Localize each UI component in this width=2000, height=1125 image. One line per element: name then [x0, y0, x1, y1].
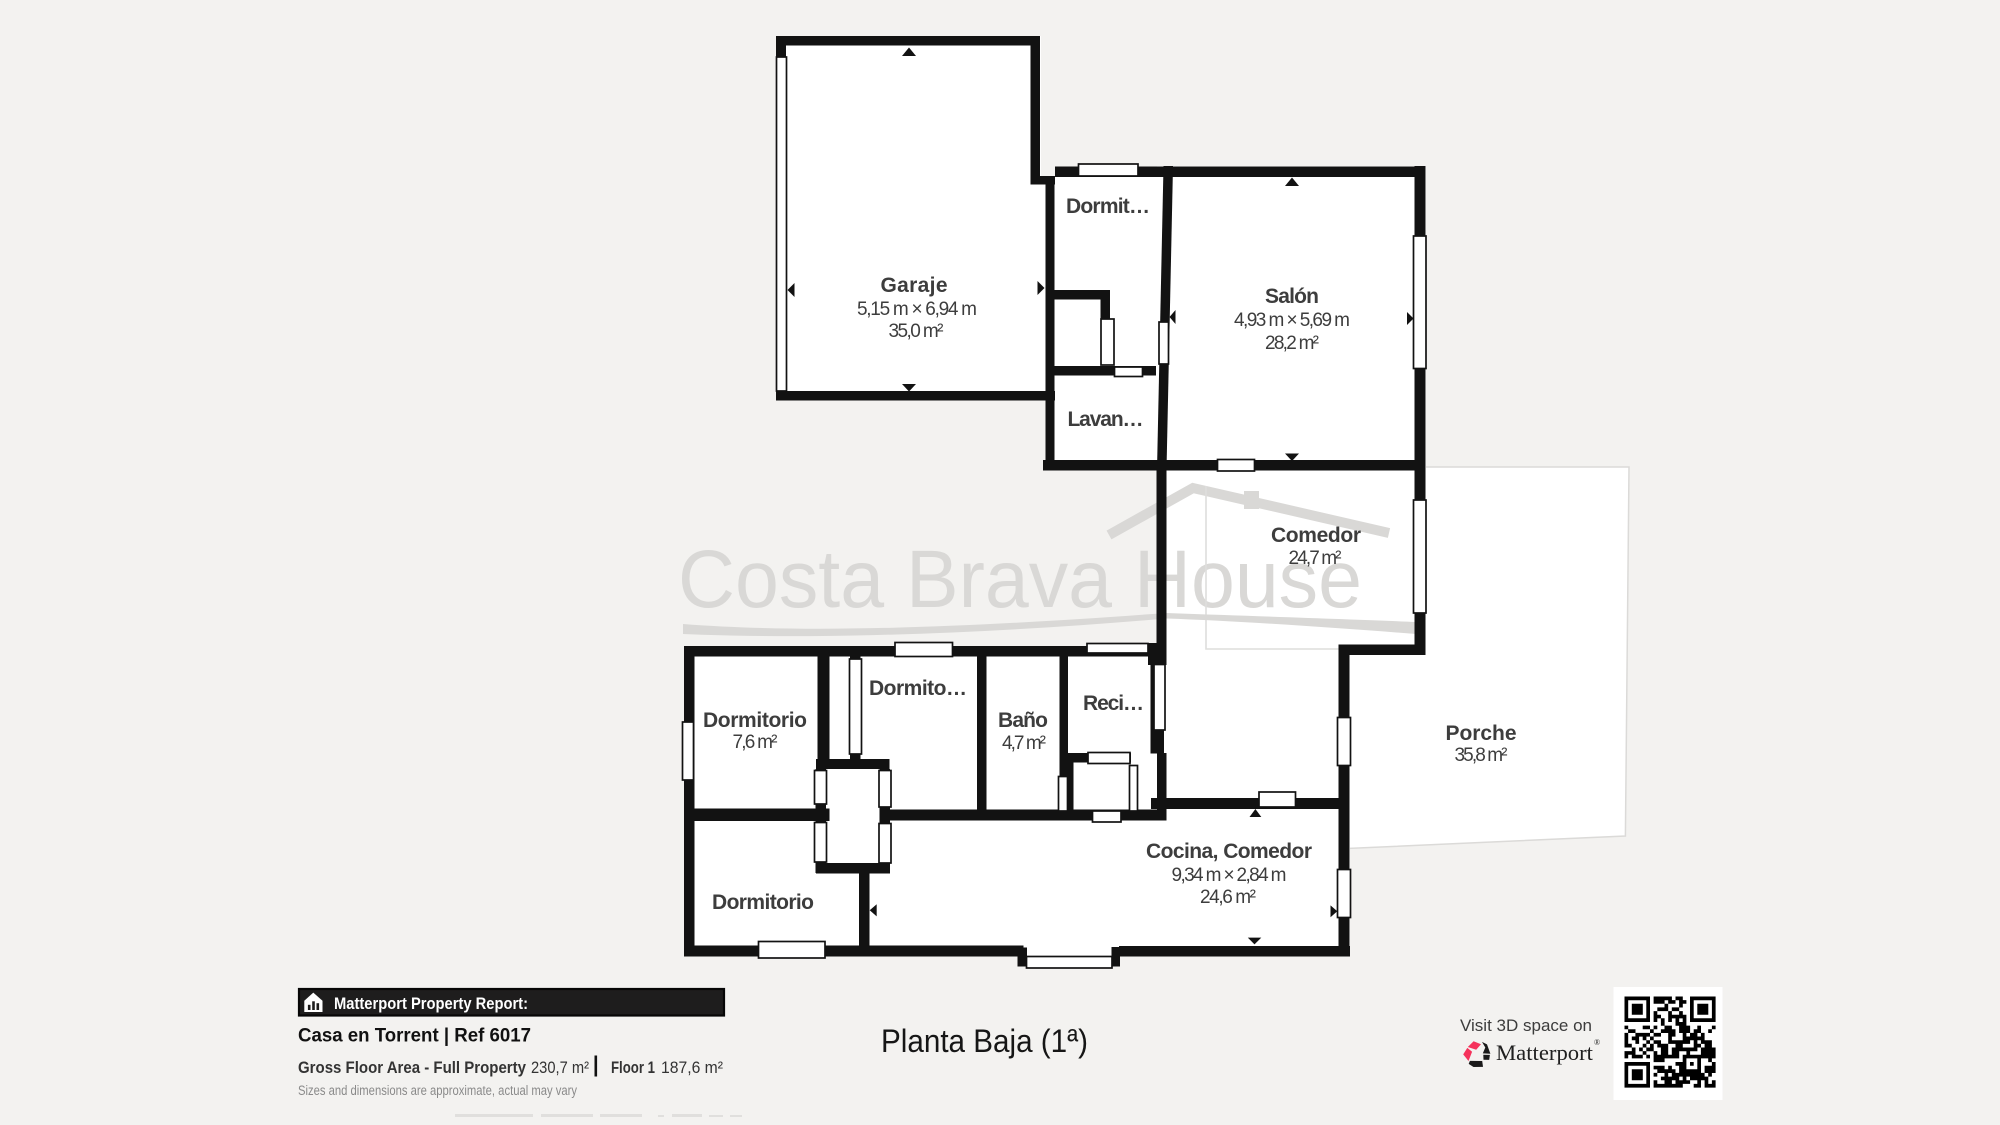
svg-text:Visit 3D space on: Visit 3D space on — [1460, 1016, 1592, 1035]
svg-text:7,6 m²: 7,6 m² — [733, 732, 778, 753]
svg-text:5,15 m × 6,94 m: 5,15 m × 6,94 m — [857, 299, 977, 320]
svg-text:Matterport Property Report:: Matterport Property Report: — [334, 995, 528, 1013]
svg-text:Planta Baja (1ª): Planta Baja (1ª) — [881, 1023, 1088, 1059]
svg-text:Baño: Baño — [998, 709, 1048, 732]
svg-text:Dormitorio: Dormitorio — [703, 709, 807, 732]
svg-text:Dormit…: Dormit… — [1066, 195, 1150, 218]
svg-text:Gross Floor Area - Full Proper: Gross Floor Area - Full Property — [298, 1058, 526, 1077]
svg-text:®: ® — [1594, 1038, 1600, 1047]
svg-text:Casa en Torrent | Ref 6017: Casa en Torrent | Ref 6017 — [298, 1025, 531, 1047]
svg-text:Matterport: Matterport — [1496, 1040, 1593, 1065]
svg-text:35,0 m²: 35,0 m² — [889, 321, 944, 342]
svg-text:Comedor: Comedor — [1271, 524, 1361, 547]
svg-text:230,7 m²: 230,7 m² — [531, 1058, 589, 1077]
svg-text:24,6 m²: 24,6 m² — [1200, 887, 1256, 908]
svg-text:Lavan…: Lavan… — [1068, 408, 1144, 431]
svg-text:Costa Brava House: Costa Brava House — [678, 534, 1362, 625]
svg-text:28,2 m²: 28,2 m² — [1265, 333, 1319, 354]
svg-text:Porche: Porche — [1446, 722, 1517, 745]
svg-text:35,8 m²: 35,8 m² — [1455, 745, 1508, 766]
svg-text:Garaje: Garaje — [881, 274, 948, 297]
svg-text:Dormitorio: Dormitorio — [712, 891, 814, 914]
svg-text:Dormito…: Dormito… — [869, 677, 967, 700]
svg-text:9,34 m × 2,84 m: 9,34 m × 2,84 m — [1172, 865, 1287, 886]
svg-text:Reci…: Reci… — [1083, 692, 1144, 715]
svg-text:187,6 m²: 187,6 m² — [661, 1058, 723, 1077]
svg-text:Cocina, Comedor: Cocina, Comedor — [1146, 840, 1312, 863]
svg-text:4,93 m × 5,69 m: 4,93 m × 5,69 m — [1234, 310, 1350, 331]
svg-text:Sizes and dimensions are appro: Sizes and dimensions are approximate, ac… — [298, 1083, 577, 1098]
svg-text:Salón: Salón — [1265, 285, 1319, 308]
svg-text:Floor 1: Floor 1 — [611, 1058, 655, 1077]
svg-text:24,7 m²: 24,7 m² — [1289, 548, 1342, 569]
svg-text:4,7 m²: 4,7 m² — [1002, 733, 1046, 754]
